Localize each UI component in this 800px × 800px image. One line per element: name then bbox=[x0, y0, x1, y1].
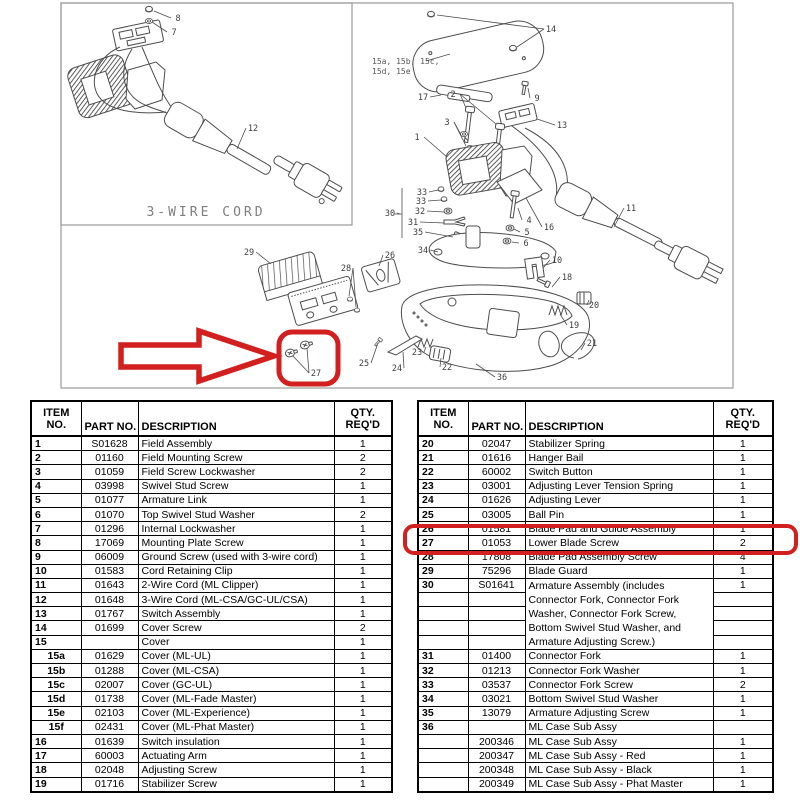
cell-qty: 1 bbox=[334, 763, 392, 777]
table-row: 2601581Blade Pad and Guide Assembly1 bbox=[418, 522, 773, 536]
cell-desc: Cover Screw bbox=[138, 621, 334, 635]
cell-desc: Internal Lockwasher bbox=[138, 522, 334, 536]
cell-item: 19 bbox=[31, 777, 81, 792]
cell-desc: Cover bbox=[138, 635, 334, 649]
cell-desc: Adjusting Screw bbox=[138, 763, 334, 777]
cell-part: 01213 bbox=[468, 664, 525, 678]
cell-desc: Bottom Swivel Stud Washer bbox=[525, 692, 713, 706]
cell-part: 200347 bbox=[468, 749, 525, 763]
field-assembly bbox=[445, 141, 510, 196]
table-row: 1401699Cover Screw2 bbox=[31, 621, 392, 635]
adjusting-screw-18 bbox=[536, 277, 550, 288]
cell-qty: 1 bbox=[334, 720, 392, 734]
cell-part: 01699 bbox=[81, 621, 138, 635]
lower-blade-screws bbox=[285, 339, 314, 357]
cell-part: 75296 bbox=[468, 564, 525, 578]
cell-item: 15a bbox=[31, 649, 81, 663]
cell-desc: Mounting Plate Screw bbox=[138, 536, 334, 550]
cell-desc: Adjusting Lever bbox=[525, 493, 713, 507]
cell-qty: 1 bbox=[334, 706, 392, 720]
cell-part: 01077 bbox=[81, 493, 138, 507]
cell-part: 02431 bbox=[81, 720, 138, 734]
cell-part: 60002 bbox=[468, 465, 525, 479]
cell-part: 03537 bbox=[468, 678, 525, 692]
cell-part: 01648 bbox=[81, 593, 138, 607]
cell-desc: Stabilizer Spring bbox=[525, 436, 713, 451]
cell-qty: 2 bbox=[334, 507, 392, 521]
cell-desc: Stabilizer Screw bbox=[138, 777, 334, 792]
callout-leader-line bbox=[427, 211, 444, 212]
cell-qty: 1 bbox=[334, 635, 392, 649]
diagram-callout: 23 bbox=[412, 348, 422, 358]
cell-item: 22 bbox=[418, 465, 468, 479]
callout-leader-line bbox=[425, 232, 453, 237]
table-row: 1901716Stabilizer Screw1 bbox=[31, 777, 392, 792]
cell-qty: 1 bbox=[334, 436, 392, 451]
cell-part: 02047 bbox=[468, 436, 525, 451]
cell-item: 27 bbox=[418, 536, 468, 550]
diagram-callout: 17 bbox=[418, 93, 428, 103]
table-row: 501077Armature Link1 bbox=[31, 493, 392, 507]
cell-qty: 1 bbox=[713, 507, 773, 521]
cell-qty: 1 bbox=[713, 564, 773, 578]
callout-leader-line bbox=[237, 128, 246, 149]
diagram-callout: 33 bbox=[416, 197, 426, 207]
cell-desc: Swivel Stud Screw bbox=[138, 479, 334, 493]
cell-part: 01053 bbox=[468, 536, 525, 550]
cell-desc: Cover (ML-Experience) bbox=[138, 706, 334, 720]
cell-desc: Field Assembly bbox=[138, 436, 334, 451]
cell-desc: Field Screw Lockwasher bbox=[138, 465, 334, 479]
cell-qty: 1 bbox=[713, 706, 773, 720]
diagram-callout: 7 bbox=[171, 28, 176, 38]
cell-desc: Armature Adjusting Screw.) bbox=[525, 635, 713, 649]
cell-item: 1 bbox=[31, 436, 81, 451]
table-row: 3303537Connector Fork Screw2 bbox=[418, 678, 773, 692]
cell-item: 31 bbox=[418, 649, 468, 663]
table-row: 12016483-Wire Cord (ML-CSA/GC-UL/CSA)1 bbox=[31, 593, 392, 607]
cell-desc: Connector Fork Screw bbox=[525, 678, 713, 692]
cell-item: 13 bbox=[31, 607, 81, 621]
diagram-callout: 36 bbox=[497, 373, 507, 383]
connector-fork-screw bbox=[441, 197, 447, 202]
cell-item bbox=[418, 734, 468, 748]
cell-item: 23 bbox=[418, 479, 468, 493]
cell-item: 20 bbox=[418, 436, 468, 451]
diagram-callout: 19 bbox=[569, 321, 579, 331]
cell-qty: 1 bbox=[334, 664, 392, 678]
parts-table-right: ITEMNO. PART NO. DESCRIPTION QTY.REQ'D 2… bbox=[417, 400, 774, 793]
cell-qty: 2 bbox=[334, 621, 392, 635]
table-row: 30S01641Armature Assembly (includes1 bbox=[418, 578, 773, 592]
cell-item: 2 bbox=[31, 451, 81, 465]
diagram-callout: 30 bbox=[385, 209, 395, 219]
cell-item: 26 bbox=[418, 522, 468, 536]
header-description: DESCRIPTION bbox=[138, 401, 334, 436]
ground-screw bbox=[520, 81, 528, 95]
red-circle-screws bbox=[279, 332, 338, 384]
callout-leader-line bbox=[518, 208, 522, 220]
callout-leader-line bbox=[428, 200, 441, 201]
cell-item: 18 bbox=[31, 763, 81, 777]
cell-part: 01288 bbox=[81, 664, 138, 678]
cell-desc: Washer, Connector Fork Screw, bbox=[525, 607, 713, 621]
cell-desc: Cord Retaining Clip bbox=[138, 564, 334, 578]
cell-desc: Armature Link bbox=[138, 493, 334, 507]
cell-item: 5 bbox=[31, 493, 81, 507]
cell-item: 3 bbox=[31, 465, 81, 479]
cell-desc: Top Swivel Stud Washer bbox=[138, 507, 334, 521]
cell-item bbox=[418, 621, 468, 635]
diagram-callout: 16 bbox=[544, 223, 554, 233]
parts-manual-page: { "colors": {"highlight_red":"#d21f1f","… bbox=[0, 0, 800, 800]
table-row: 1301767Switch Assembly1 bbox=[31, 607, 392, 621]
cell-part: 01738 bbox=[81, 692, 138, 706]
cell-desc: ML Case Sub Assy - Red bbox=[525, 749, 713, 763]
diagram-callout: 28 bbox=[341, 264, 351, 274]
cell-part: 01767 bbox=[81, 607, 138, 621]
table-row: 1760003Actuating Arm1 bbox=[31, 749, 392, 763]
blade-pad-screw bbox=[347, 297, 352, 301]
table-row: 403998Swivel Stud Screw1 bbox=[31, 479, 392, 493]
table-row: 15Cover1 bbox=[31, 635, 392, 649]
cell-item: 15 bbox=[31, 635, 81, 649]
cell-desc: 2-Wire Cord (ML Clipper) bbox=[138, 578, 334, 592]
diagram-callout: 4 bbox=[526, 216, 531, 226]
cell-desc: Armature Adjusting Screw bbox=[525, 706, 713, 720]
cell-part: 03021 bbox=[468, 692, 525, 706]
diagram-callout: 13 bbox=[557, 121, 567, 131]
cell-qty bbox=[713, 621, 773, 635]
cell-qty: 1 bbox=[334, 479, 392, 493]
header-qty-reqd: QTY.REQ'D bbox=[334, 401, 392, 436]
cell-part: 03001 bbox=[468, 479, 525, 493]
cell-qty: 1 bbox=[713, 649, 773, 663]
cell-desc: Actuating Arm bbox=[138, 749, 334, 763]
exploded-parts-diagram: 3-WIRE CORD 15a, 15b, 15c, 15d, 15e bbox=[0, 0, 800, 398]
cell-qty: 1 bbox=[334, 678, 392, 692]
cell-desc: 3-Wire Cord (ML-CSA/GC-UL/CSA) bbox=[138, 593, 334, 607]
callout-leader-line bbox=[420, 222, 444, 223]
diagram-callout: 26 bbox=[385, 251, 395, 261]
cell-desc: Hanger Bail bbox=[525, 451, 713, 465]
table-row: 201160Field Mounting Screw2 bbox=[31, 451, 392, 465]
cell-part: 01296 bbox=[81, 522, 138, 536]
cell-part: 200346 bbox=[468, 734, 525, 748]
header-item-no: ITEMNO. bbox=[31, 401, 81, 436]
cell-part: 01626 bbox=[468, 493, 525, 507]
callout-leader-line bbox=[256, 252, 271, 264]
diagram-callout: 25 bbox=[359, 359, 369, 369]
table-row: 817069Mounting Plate Screw1 bbox=[31, 536, 392, 550]
diagram-callout: 5 bbox=[524, 228, 529, 238]
table-row: 15f02431Cover (ML-Phat Master)1 bbox=[31, 720, 392, 734]
table-row: Armature Adjusting Screw.) bbox=[418, 635, 773, 649]
cell-part: 01583 bbox=[81, 564, 138, 578]
actuating-arm bbox=[436, 85, 493, 106]
cell-qty: 1 bbox=[713, 465, 773, 479]
cell-part: 01160 bbox=[81, 451, 138, 465]
cell-qty bbox=[713, 593, 773, 607]
header-part-no: PART NO. bbox=[81, 401, 138, 436]
table-row: 2701053Lower Blade Screw2 bbox=[418, 536, 773, 550]
cell-part: 60003 bbox=[81, 749, 138, 763]
table-row: 3201213Connector Fork Washer1 bbox=[418, 664, 773, 678]
cell-desc: Field Mounting Screw bbox=[138, 451, 334, 465]
callout-leader-line bbox=[154, 11, 171, 18]
cell-desc: Cover (ML-Phat Master) bbox=[138, 720, 334, 734]
cell-desc: Blade Pad Assembly Screw bbox=[525, 550, 713, 564]
cell-qty: 1 bbox=[713, 479, 773, 493]
cell-item: 17 bbox=[31, 749, 81, 763]
cell-item: 16 bbox=[31, 734, 81, 748]
cell-item: 30 bbox=[418, 578, 468, 592]
cell-qty: 1 bbox=[334, 777, 392, 792]
field-mounting-screw bbox=[462, 106, 475, 143]
cell-part: 02103 bbox=[81, 706, 138, 720]
cell-item: 29 bbox=[418, 564, 468, 578]
cell-desc: ML Case Sub Assy bbox=[525, 734, 713, 748]
table-row: 3403021Bottom Swivel Stud Washer1 bbox=[418, 692, 773, 706]
cell-qty: 2 bbox=[334, 451, 392, 465]
cover-screw-icon bbox=[428, 11, 435, 17]
cell-desc: Cover (ML-CSA) bbox=[138, 664, 334, 678]
table-row: 2975296Blade Guard1 bbox=[418, 564, 773, 578]
cover-variants-label-2: 15d, 15e bbox=[372, 67, 411, 76]
cell-qty: 2 bbox=[713, 678, 773, 692]
table-row: 301059Field Screw Lockwasher2 bbox=[31, 465, 392, 479]
cell-item: 21 bbox=[418, 451, 468, 465]
diagram-callout: 35 bbox=[413, 228, 423, 238]
table-row: 1S01628Field Assembly1 bbox=[31, 436, 392, 451]
callout-leader-line bbox=[430, 95, 441, 97]
callout-leader-line bbox=[537, 119, 555, 125]
cell-part: 17808 bbox=[468, 550, 525, 564]
cell-item: 34 bbox=[418, 692, 468, 706]
table-row: 2303001Adjusting Lever Tension Spring1 bbox=[418, 479, 773, 493]
field-screw-lockwasher bbox=[460, 131, 467, 136]
blade-pad-screw bbox=[354, 308, 359, 312]
table-row: 15d01738Cover (ML-Fade Master)1 bbox=[31, 692, 392, 706]
cell-qty: 1 bbox=[713, 777, 773, 792]
cell-part: 03005 bbox=[468, 507, 525, 521]
cell-desc: Lower Blade Screw bbox=[525, 536, 713, 550]
table-row: 2101616Hanger Bail1 bbox=[418, 451, 773, 465]
cell-desc: Switch insulation bbox=[138, 734, 334, 748]
diagram-callout: 24 bbox=[392, 364, 402, 374]
table-row: 200347ML Case Sub Assy - Red1 bbox=[418, 749, 773, 763]
callout-leader-line bbox=[307, 348, 309, 373]
table-row: 601070Top Swivel Stud Washer2 bbox=[31, 507, 392, 521]
cell-qty: 1 bbox=[713, 664, 773, 678]
cell-desc: Switch Button bbox=[525, 465, 713, 479]
cell-part: 01629 bbox=[81, 649, 138, 663]
table-row: 1001583Cord Retaining Clip1 bbox=[31, 564, 392, 578]
table-header-row: ITEMNO. PART NO. DESCRIPTION QTY.REQ'D bbox=[31, 401, 392, 436]
cell-desc: Cover (GC-UL) bbox=[138, 678, 334, 692]
cell-qty: 1 bbox=[334, 564, 392, 578]
diagram-callout: 10 bbox=[552, 256, 562, 266]
cell-desc: Blade Guard bbox=[525, 564, 713, 578]
diagram-callout: 18 bbox=[562, 273, 572, 283]
cell-part: 01639 bbox=[81, 734, 138, 748]
callout-leader-line bbox=[371, 343, 378, 363]
cell-item: 14 bbox=[31, 621, 81, 635]
cover-variants-label-1: 15a, 15b, 15c, bbox=[372, 57, 439, 66]
cell-item: 9 bbox=[31, 550, 81, 564]
cell-item: 4 bbox=[31, 479, 81, 493]
cell-part: 01716 bbox=[81, 777, 138, 792]
cell-qty: 1 bbox=[713, 451, 773, 465]
cell-qty: 1 bbox=[334, 692, 392, 706]
cell-part: 02048 bbox=[81, 763, 138, 777]
table-row: 2002047Stabilizer Spring1 bbox=[418, 436, 773, 451]
cord-retaining-clip bbox=[525, 257, 545, 279]
parts-table-left: ITEMNO. PART NO. DESCRIPTION QTY.REQ'D 1… bbox=[30, 400, 393, 793]
ball-pin-25 bbox=[374, 337, 383, 347]
cell-item bbox=[418, 777, 468, 792]
callout-leader-line bbox=[403, 352, 404, 368]
diagram-callout: 1 bbox=[414, 133, 419, 143]
diagram-callout: 20 bbox=[589, 301, 599, 311]
cell-item: 10 bbox=[31, 564, 81, 578]
table-row: Bottom Swivel Stud Washer, and bbox=[418, 621, 773, 635]
cell-part bbox=[468, 720, 525, 734]
cell-item: 36 bbox=[418, 720, 468, 734]
header-description: DESCRIPTION bbox=[525, 401, 713, 436]
cell-desc: Cover (ML-UL) bbox=[138, 649, 334, 663]
cell-item: 25 bbox=[418, 507, 468, 521]
table-row: 36ML Case Sub Assy bbox=[418, 720, 773, 734]
cell-qty: 1 bbox=[713, 763, 773, 777]
cell-part: 01070 bbox=[81, 507, 138, 521]
cell-item bbox=[418, 749, 468, 763]
cell-part: 01643 bbox=[81, 578, 138, 592]
table-row: 2817808Blade Pad Assembly Screw4 bbox=[418, 550, 773, 564]
cell-item: 24 bbox=[418, 493, 468, 507]
cell-item: 15d bbox=[31, 692, 81, 706]
lockwasher-icon bbox=[145, 18, 152, 23]
cell-item: 28 bbox=[418, 550, 468, 564]
cell-desc: Armature Assembly (includes bbox=[525, 578, 713, 592]
blade-pad-guide bbox=[361, 258, 401, 292]
table-row: 15c02007Cover (GC-UL)1 bbox=[31, 678, 392, 692]
cell-part: 01616 bbox=[468, 451, 525, 465]
table-row: 200346ML Case Sub Assy1 bbox=[418, 734, 773, 748]
cell-desc: Adjusting Lever Tension Spring bbox=[525, 479, 713, 493]
cell-qty: 1 bbox=[334, 734, 392, 748]
diagram-callout: 2 bbox=[450, 90, 455, 100]
table-row: 15e02103Cover (ML-Experience)1 bbox=[31, 706, 392, 720]
cell-desc: ML Case Sub Assy bbox=[525, 720, 713, 734]
cell-item: 33 bbox=[418, 678, 468, 692]
header-part-no: PART NO. bbox=[468, 401, 525, 436]
cell-item bbox=[418, 593, 468, 607]
cell-part: 200348 bbox=[468, 763, 525, 777]
cell-desc: Ground Screw (used with 3-wire cord) bbox=[138, 550, 334, 564]
cell-desc: ML Case Sub Assy - Black bbox=[525, 763, 713, 777]
diagram-callout: 8 bbox=[175, 14, 180, 24]
cell-part: 01581 bbox=[468, 522, 525, 536]
callout-leader-line bbox=[514, 229, 520, 232]
cell-part bbox=[81, 635, 138, 649]
cell-part: S01628 bbox=[81, 436, 138, 451]
table-row: 3513079Armature Adjusting Screw1 bbox=[418, 706, 773, 720]
diagram-callout: 21 bbox=[587, 339, 597, 349]
cell-qty bbox=[713, 635, 773, 649]
connector-fork-screw bbox=[438, 187, 444, 192]
cell-qty: 1 bbox=[334, 749, 392, 763]
cell-qty: 1 bbox=[334, 578, 392, 592]
table-row: 1802048Adjusting Screw1 bbox=[31, 763, 392, 777]
cell-desc: Connector Fork, Connector Fork bbox=[525, 593, 713, 607]
cell-qty: 1 bbox=[334, 593, 392, 607]
cell-item bbox=[418, 763, 468, 777]
table-row: 11016432-Wire Cord (ML Clipper)1 bbox=[31, 578, 392, 592]
table-row: 906009Ground Screw (used with 3-wire cor… bbox=[31, 550, 392, 564]
cell-item: 15e bbox=[31, 706, 81, 720]
cord-sleeve-inset bbox=[161, 99, 277, 181]
header-item-no: ITEMNO. bbox=[418, 401, 468, 436]
inset-title: 3-WIRE CORD bbox=[146, 205, 265, 220]
cell-qty: 1 bbox=[713, 734, 773, 748]
cell-desc: Cover (ML-Fade Master) bbox=[138, 692, 334, 706]
table-row: Connector Fork, Connector Fork bbox=[418, 593, 773, 607]
connector-fork bbox=[444, 217, 465, 226]
cell-item: 35 bbox=[418, 706, 468, 720]
callout-leader-line bbox=[424, 137, 447, 157]
cell-item: 15f bbox=[31, 720, 81, 734]
cell-part bbox=[468, 621, 525, 635]
cell-qty: 1 bbox=[713, 692, 773, 706]
table-row: 15b01288Cover (ML-CSA)1 bbox=[31, 664, 392, 678]
table-row: 15a01629Cover (ML-UL)1 bbox=[31, 649, 392, 663]
callout-leader-line bbox=[293, 356, 309, 373]
cell-item: 7 bbox=[31, 522, 81, 536]
cell-part bbox=[468, 635, 525, 649]
cell-desc: Ball Pin bbox=[525, 507, 713, 521]
diagram-callout: 34 bbox=[418, 246, 428, 256]
cell-item: 8 bbox=[31, 536, 81, 550]
stud-washer bbox=[506, 225, 514, 231]
cell-desc: Bottom Swivel Stud Washer, and bbox=[525, 621, 713, 635]
three-prong-plug bbox=[267, 148, 344, 209]
cell-item bbox=[418, 607, 468, 621]
cell-part bbox=[468, 607, 525, 621]
cell-qty: 1 bbox=[713, 522, 773, 536]
table-row: Washer, Connector Fork Screw, bbox=[418, 607, 773, 621]
diagram-callout: 3 bbox=[444, 118, 449, 128]
table-row: 701296Internal Lockwasher1 bbox=[31, 522, 392, 536]
diagram-callout: 6 bbox=[523, 239, 528, 249]
diagram-callout: 11 bbox=[626, 204, 636, 214]
cell-qty: 1 bbox=[334, 607, 392, 621]
cell-qty: 1 bbox=[334, 550, 392, 564]
diagram-callout: 9 bbox=[534, 94, 539, 104]
cell-qty: 1 bbox=[713, 436, 773, 451]
cell-part: 02007 bbox=[81, 678, 138, 692]
cell-qty: 1 bbox=[713, 578, 773, 592]
diagram-callout: 22 bbox=[442, 363, 452, 373]
cell-qty: 4 bbox=[713, 550, 773, 564]
cell-part: 01400 bbox=[468, 649, 525, 663]
cell-item: 32 bbox=[418, 664, 468, 678]
cell-part bbox=[468, 593, 525, 607]
table-row: 200348ML Case Sub Assy - Black1 bbox=[418, 763, 773, 777]
cell-part: 200349 bbox=[468, 777, 525, 792]
table-row: 1601639Switch insulation1 bbox=[31, 734, 392, 748]
cell-item: 15c bbox=[31, 678, 81, 692]
